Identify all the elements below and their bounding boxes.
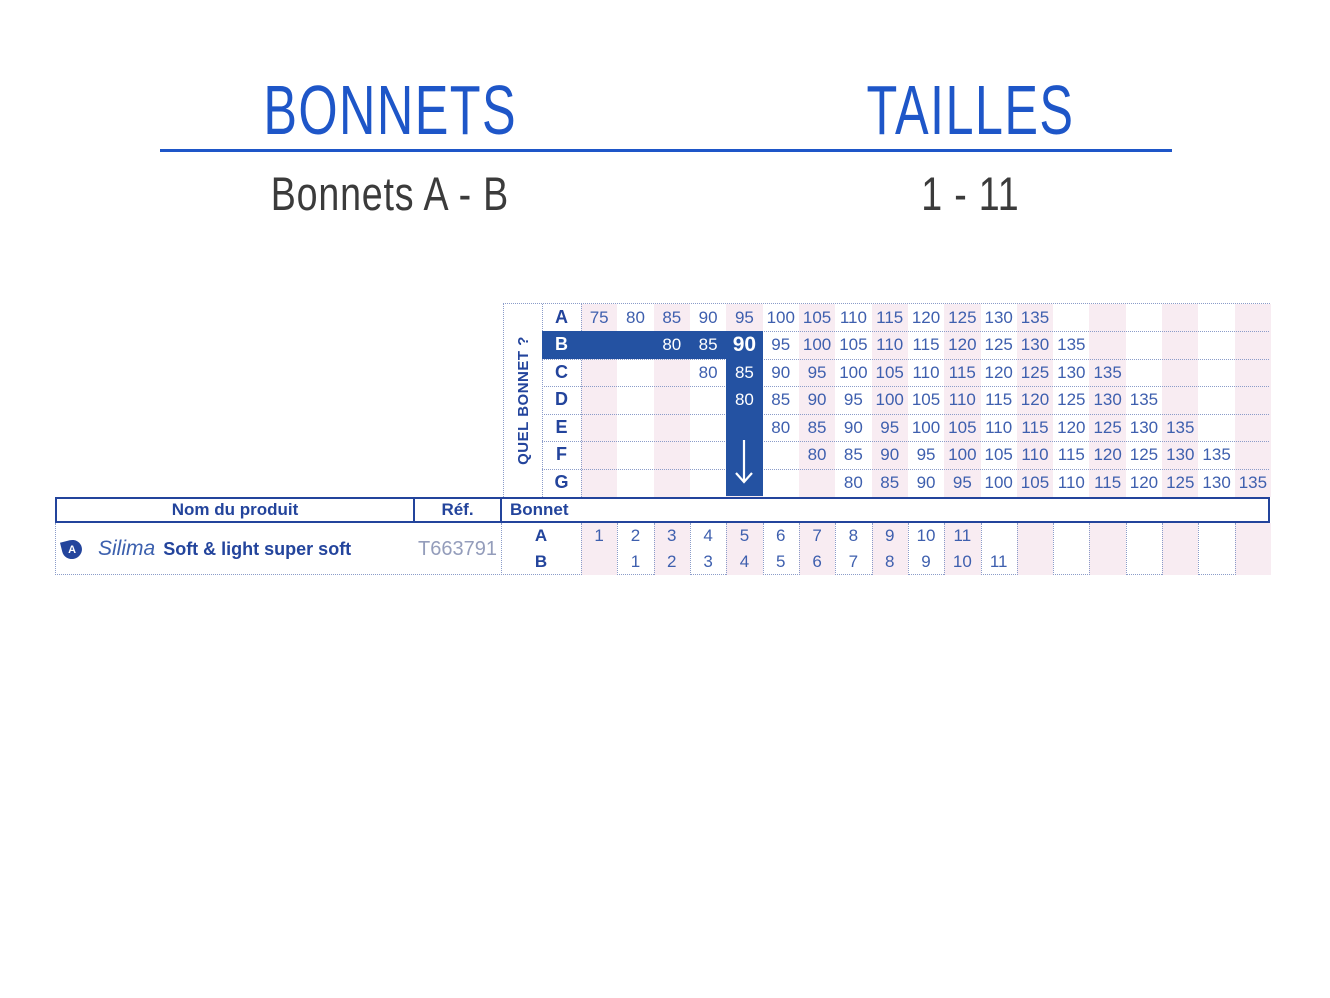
product-reference: T663791 xyxy=(414,523,501,575)
size-cell: 130 xyxy=(1089,386,1125,413)
bonnet-size-cell: 6 xyxy=(799,549,835,575)
bonnet-size-cell: 11 xyxy=(944,523,980,549)
size-cell: 120 xyxy=(1126,469,1162,496)
size-cell: 125 xyxy=(1162,469,1198,496)
size-cell: 90 xyxy=(908,469,944,496)
bonnet-size-cell: 9 xyxy=(908,549,944,575)
size-cell: 125 xyxy=(1089,414,1125,441)
size-cell: 120 xyxy=(1053,414,1089,441)
product-brand: Silima xyxy=(98,537,155,561)
size-cell: 135 xyxy=(1198,441,1234,468)
size-cell: 115 xyxy=(1053,441,1089,468)
size-column-divider xyxy=(1053,523,1054,575)
size-cell: 100 xyxy=(944,441,980,468)
bonnets-title: BONNETS xyxy=(263,75,517,145)
size-cell: 85 xyxy=(690,331,726,358)
size-column-divider xyxy=(1198,523,1199,575)
size-cell: 75 xyxy=(581,304,617,331)
size-cell: 120 xyxy=(908,304,944,331)
bonnet-size-cell: 8 xyxy=(835,523,871,549)
bonnet-size-cell: 7 xyxy=(799,523,835,549)
down-arrow-icon xyxy=(726,438,762,488)
tailles-title: TAILLES xyxy=(866,75,1074,145)
size-cell: 95 xyxy=(726,304,762,331)
right-subtitle-wrap: 1 - 11 xyxy=(730,170,1210,217)
size-column-divider xyxy=(1089,523,1090,575)
size-cell: 110 xyxy=(835,304,871,331)
cup-row-label: C xyxy=(542,359,581,386)
bonnet-size-cell: 5 xyxy=(726,523,762,549)
size-cell: 105 xyxy=(981,441,1017,468)
column-stripe xyxy=(1235,523,1271,575)
size-cell: 110 xyxy=(1053,469,1089,496)
size-cell: 120 xyxy=(981,359,1017,386)
size-cell: 135 xyxy=(1235,469,1271,496)
size-cell: 95 xyxy=(763,331,799,358)
size-cell: 125 xyxy=(1126,441,1162,468)
size-cell: 130 xyxy=(1126,414,1162,441)
size-cell: 135 xyxy=(1089,359,1125,386)
size-cell: 80 xyxy=(654,331,690,358)
size-cell: 135 xyxy=(1017,304,1053,331)
size-cell: 105 xyxy=(872,359,908,386)
size-cell: 105 xyxy=(799,304,835,331)
cup-row-label: F xyxy=(542,441,581,468)
size-cell: 95 xyxy=(835,386,871,413)
size-cell: 90 xyxy=(835,414,871,441)
product-table-body: A1234567891011B1234567891011 A Silima So… xyxy=(55,523,1270,575)
size-cell: 110 xyxy=(944,386,980,413)
side-label-cell: QUEL BONNET ? xyxy=(504,304,542,497)
bonnet-cup-label: A xyxy=(501,523,581,549)
size-cell: 85 xyxy=(763,386,799,413)
size-chart-grid: QUEL BONNET ? A7580859095100105110115120… xyxy=(504,304,1269,497)
size-column-divider xyxy=(1126,523,1127,575)
size-cell: 80 xyxy=(835,469,871,496)
size-cell: 100 xyxy=(835,359,871,386)
size-cell: 120 xyxy=(1089,441,1125,468)
size-cell: 85 xyxy=(726,359,762,386)
size-chart-table: QUEL BONNET ? A7580859095100105110115120… xyxy=(503,303,1270,497)
bonnets-range: Bonnets A - B xyxy=(271,170,509,217)
size-cell: 80 xyxy=(763,414,799,441)
bonnet-size-cell: 6 xyxy=(763,523,799,549)
bonnet-size-cell: 5 xyxy=(763,549,799,575)
size-cell: 80 xyxy=(799,441,835,468)
size-cell: 85 xyxy=(872,469,908,496)
cup-row-label: A xyxy=(542,304,581,331)
size-cell: 115 xyxy=(1017,414,1053,441)
cup-row-label: D xyxy=(542,386,581,413)
size-cell: 120 xyxy=(944,331,980,358)
column-stripe xyxy=(1162,523,1198,575)
catalog-page: BONNETS TAILLES Bonnets A - B 1 - 11 QUE… xyxy=(0,0,1330,998)
size-cell: 130 xyxy=(1017,331,1053,358)
size-cell: 90 xyxy=(799,386,835,413)
size-cell: 115 xyxy=(1089,469,1125,496)
size-cell: 130 xyxy=(1198,469,1234,496)
bonnet-size-cell: 9 xyxy=(872,523,908,549)
size-cell: 130 xyxy=(981,304,1017,331)
size-cell: 100 xyxy=(908,414,944,441)
size-cell: 130 xyxy=(1053,359,1089,386)
size-cell: 125 xyxy=(944,304,980,331)
size-cell: 95 xyxy=(908,441,944,468)
product-name: Soft & light super soft xyxy=(163,539,351,560)
left-title-wrap: BONNETS xyxy=(150,75,630,145)
title-underline xyxy=(160,149,1172,152)
column-stripe xyxy=(1089,523,1125,575)
size-cell: 110 xyxy=(872,331,908,358)
bonnet-size-cell: 3 xyxy=(654,523,690,549)
cup-row-label: B xyxy=(542,331,581,358)
quel-bonnet-label: QUEL BONNET ? xyxy=(515,336,532,465)
size-cell: 110 xyxy=(1017,441,1053,468)
size-column-divider xyxy=(1162,523,1163,575)
bonnet-size-cell: 3 xyxy=(690,549,726,575)
size-cell: 95 xyxy=(872,414,908,441)
bonnet-size-cell: 4 xyxy=(726,549,762,575)
size-cell: 135 xyxy=(1126,386,1162,413)
size-cell: 105 xyxy=(944,414,980,441)
left-subtitle-wrap: Bonnets A - B xyxy=(150,170,630,217)
size-cell: 115 xyxy=(944,359,980,386)
size-cell: 85 xyxy=(799,414,835,441)
size-cell: 115 xyxy=(872,304,908,331)
bonnet-size-cell: 7 xyxy=(835,549,871,575)
cup-row-label: G xyxy=(542,469,581,496)
product-table-header: Nom du produit Réf. Bonnet xyxy=(55,497,1270,523)
bonnet-size-cell: 10 xyxy=(908,523,944,549)
size-column-divider xyxy=(1017,523,1018,575)
bonnet-cup-label: B xyxy=(501,549,581,575)
size-cell: 115 xyxy=(981,386,1017,413)
size-cell: 100 xyxy=(981,469,1017,496)
size-cell: 120 xyxy=(1017,386,1053,413)
size-cell: 90 xyxy=(690,304,726,331)
size-cell: 115 xyxy=(908,331,944,358)
size-cell: 105 xyxy=(835,331,871,358)
bonnet-size-cell: 2 xyxy=(617,523,653,549)
cup-row-label: E xyxy=(542,414,581,441)
size-cell: 100 xyxy=(799,331,835,358)
size-cell: 130 xyxy=(1162,441,1198,468)
bonnet-size-cell: 2 xyxy=(654,549,690,575)
size-cell: 95 xyxy=(944,469,980,496)
size-cell: 80 xyxy=(617,304,653,331)
size-cell: 80 xyxy=(726,386,762,413)
size-cell: 135 xyxy=(1053,331,1089,358)
size-cell: 105 xyxy=(908,386,944,413)
size-cell: 90 xyxy=(763,359,799,386)
size-cell: 110 xyxy=(981,414,1017,441)
size-cell: 90 xyxy=(872,441,908,468)
size-cell: 135 xyxy=(1162,414,1198,441)
size-cell: 125 xyxy=(1053,386,1089,413)
size-cell: 100 xyxy=(763,304,799,331)
header-nom-du-produit: Nom du produit xyxy=(57,499,413,521)
bonnet-size-cell: 4 xyxy=(690,523,726,549)
product-a-badge-icon: A xyxy=(60,537,84,560)
right-title-wrap: TAILLES xyxy=(730,75,1210,145)
product-table: Nom du produit Réf. Bonnet A123456789101… xyxy=(55,497,1270,575)
header-ref: Réf. xyxy=(415,499,500,521)
size-cell: 105 xyxy=(1017,469,1053,496)
size-cell: 90 xyxy=(726,331,762,358)
size-column-divider xyxy=(1235,523,1236,575)
size-cell: 85 xyxy=(835,441,871,468)
bonnet-size-cell: 8 xyxy=(872,549,908,575)
size-cell: 110 xyxy=(908,359,944,386)
size-cell: 125 xyxy=(1017,359,1053,386)
size-cell: 100 xyxy=(872,386,908,413)
size-cell: 95 xyxy=(799,359,835,386)
size-cell: 85 xyxy=(654,304,690,331)
bonnet-size-cell: 10 xyxy=(944,549,980,575)
size-cell: 125 xyxy=(981,331,1017,358)
size-cell: 80 xyxy=(690,359,726,386)
tailles-range: 1 - 11 xyxy=(921,170,1019,217)
column-stripe xyxy=(1017,523,1053,575)
header-bonnet: Bonnet xyxy=(502,499,802,521)
product-name-cell: A Silima Soft & light super soft xyxy=(56,523,414,575)
bonnet-size-cell: 11 xyxy=(981,549,1017,575)
bonnet-size-cell: 1 xyxy=(617,549,653,575)
bonnet-size-cell: 1 xyxy=(581,523,617,549)
